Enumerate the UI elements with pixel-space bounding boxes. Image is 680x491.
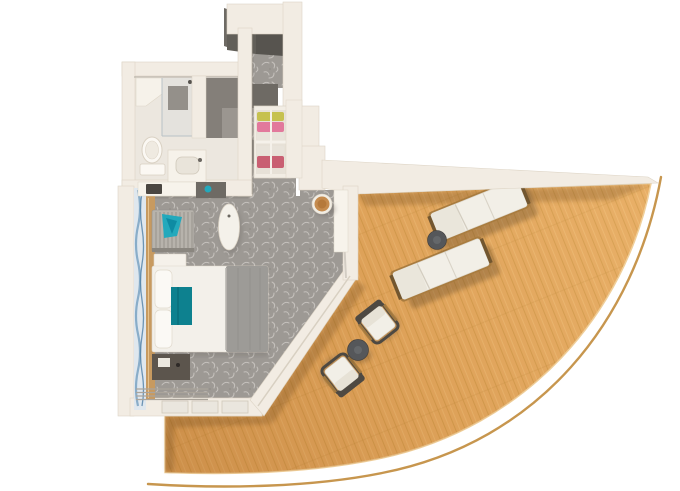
floorplan-illustration (0, 0, 680, 491)
shower (162, 76, 206, 138)
sink-vanity (168, 150, 206, 182)
glass-pane-2 (192, 401, 218, 413)
entry-door-block (227, 4, 285, 34)
gray-duvet (226, 266, 268, 352)
vanity-console (138, 182, 226, 198)
glass-pane-1 (162, 401, 188, 413)
pillow-2 (155, 310, 172, 348)
vanity-counter (334, 190, 348, 252)
pillow-1 (155, 270, 172, 308)
counter-appliance (146, 184, 162, 194)
window-curtain (134, 188, 146, 410)
floorplan-image (0, 0, 680, 491)
glass-pane-3 (222, 401, 248, 413)
wardrobe-shelves (254, 100, 302, 178)
teal-bed-runner (171, 287, 192, 325)
teal-vase (205, 186, 212, 193)
bed (152, 266, 268, 356)
armchair (152, 210, 194, 252)
dark-nightstand (152, 354, 190, 380)
